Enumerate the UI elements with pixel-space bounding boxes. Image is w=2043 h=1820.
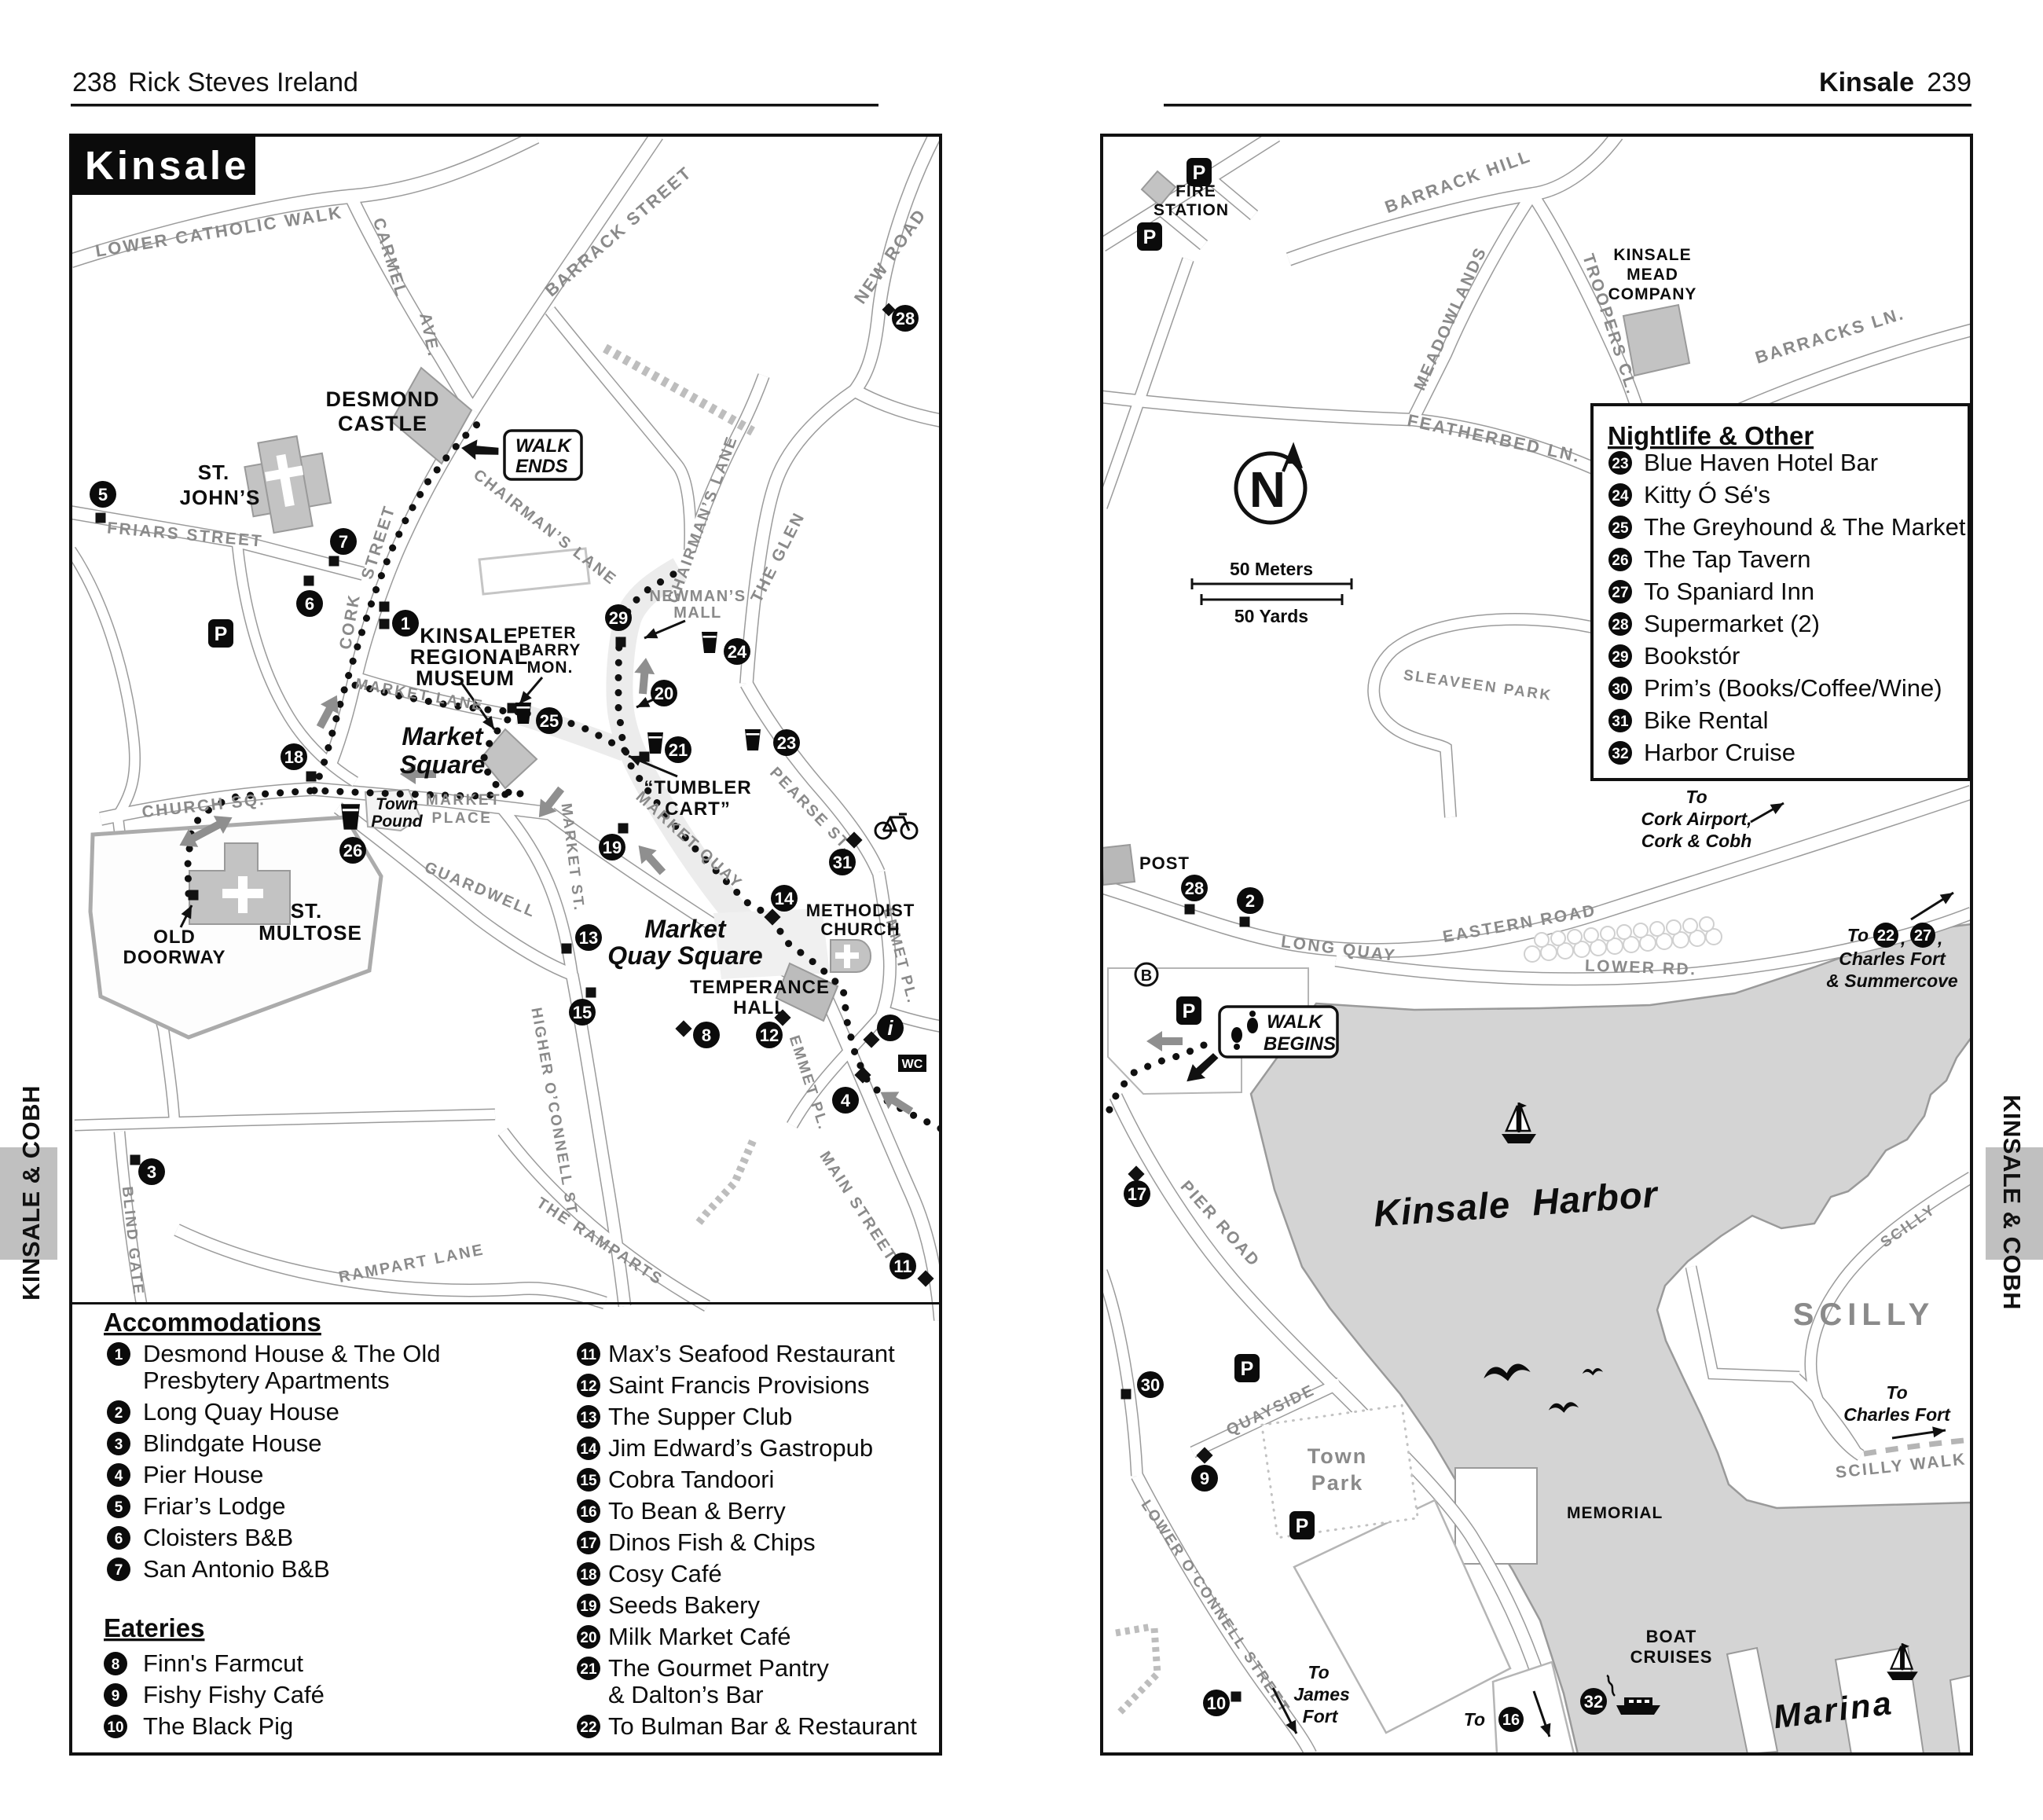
svg-text:Harbor Cruise: Harbor Cruise [1644,739,1795,766]
svg-text:30: 30 [1612,681,1628,698]
svg-text:Supermarket (2): Supermarket (2) [1644,610,1820,637]
svg-text:7: 7 [339,532,348,552]
svg-text:3: 3 [147,1162,156,1182]
svg-text:To: To [1685,787,1707,807]
svg-text:32: 32 [1584,1692,1603,1712]
svg-text:13: 13 [580,1410,596,1426]
svg-text:To Spaniard Inn: To Spaniard Inn [1644,578,1814,605]
svg-text:STATION: STATION [1154,201,1229,219]
svg-text:6: 6 [115,1531,123,1547]
svg-text:Cork Airport,: Cork Airport, [1641,809,1752,829]
svg-text:To Bean & Berry: To Bean & Berry [608,1497,786,1525]
svg-text:DESMOND: DESMOND [325,387,439,411]
svg-text:James: James [1293,1684,1350,1704]
svg-text:19: 19 [603,838,622,857]
svg-text:KINSALE: KINSALE [1613,246,1691,264]
svg-text:P: P [215,623,228,645]
svg-text:16: 16 [580,1504,596,1521]
svg-text:8: 8 [112,1657,120,1673]
svg-text:8: 8 [702,1026,711,1045]
svg-text:B: B [1141,967,1152,985]
svg-text:i: i [887,1016,893,1040]
svg-text:Town: Town [376,795,418,813]
svg-text:MARKET: MARKET [426,792,501,809]
svg-text:15: 15 [573,1003,592,1022]
svg-text:2: 2 [1245,891,1255,911]
svg-text:Quay Square: Quay Square [607,941,762,970]
svg-text:9: 9 [1200,1469,1209,1488]
svg-text:20: 20 [580,1630,596,1646]
svg-text:The Supper Club: The Supper Club [608,1403,792,1430]
svg-text:P: P [1183,1000,1196,1022]
svg-text:BEGINS: BEGINS [1264,1033,1336,1055]
svg-text:23: 23 [777,733,796,753]
svg-text:Cosy Café: Cosy Café [608,1560,722,1587]
svg-text:31: 31 [833,853,852,872]
svg-text:Bookstór: Bookstór [1644,642,1740,670]
svg-text:& Summercove: & Summercove [1826,971,1958,991]
svg-text:239: 239 [1927,68,1971,97]
svg-text:Pier House: Pier House [143,1461,263,1488]
svg-text:24: 24 [1612,488,1629,505]
svg-text:To: To [1464,1709,1485,1730]
svg-text:27: 27 [1914,927,1931,945]
svg-text:Kinsale: Kinsale [85,143,249,188]
svg-text:Rick Steves Ireland: Rick Steves Ireland [128,68,358,97]
svg-text:21: 21 [669,740,688,760]
svg-text:METHODIST: METHODIST [806,901,915,920]
svg-text:Friar’s Lodge: Friar’s Lodge [143,1492,286,1520]
svg-text:Max’s Seafood Restaurant: Max’s Seafood Restaurant [608,1340,895,1367]
svg-text:MEMORIAL: MEMORIAL [1567,1504,1663,1522]
svg-text:& Dalton’s Bar: & Dalton’s Bar [608,1681,764,1708]
svg-text:18: 18 [284,747,303,767]
svg-text:To: To [1308,1662,1329,1682]
svg-text:14: 14 [580,1441,597,1458]
svg-text:P: P [1193,162,1206,184]
svg-text:,: , [1900,928,1905,949]
svg-text:Charles Fort: Charles Fort [1839,949,1946,969]
svg-text:Park: Park [1311,1471,1364,1495]
svg-text:9: 9 [112,1688,120,1704]
svg-text:29: 29 [1612,649,1628,666]
svg-text:Seeds Bakery: Seeds Bakery [608,1591,760,1619]
svg-text:21: 21 [580,1661,597,1678]
svg-text:22: 22 [580,1719,596,1736]
svg-text:NEWMAN’S: NEWMAN’S [649,588,746,605]
svg-text:Market: Market [402,722,484,750]
svg-text:Charles Fort: Charles Fort [1843,1404,1951,1425]
svg-text:26: 26 [1612,552,1628,569]
svg-text:JOHN’S: JOHN’S [180,486,261,509]
svg-text:Accommodations: Accommodations [104,1308,321,1337]
svg-text:Kitty Ó Sé's: Kitty Ó Sé's [1644,481,1770,508]
svg-text:CRUISES: CRUISES [1630,1647,1713,1667]
svg-text:1: 1 [115,1347,123,1363]
svg-text:28: 28 [1185,879,1204,898]
svg-text:10: 10 [1207,1693,1226,1713]
svg-text:4: 4 [841,1091,851,1110]
svg-text:Eateries: Eateries [104,1613,204,1642]
svg-text:32: 32 [1612,746,1628,762]
svg-text:P: P [1143,226,1157,248]
svg-text:PLACE: PLACE [432,810,493,827]
svg-text:MULTOSE: MULTOSE [259,921,362,945]
svg-text:11: 11 [893,1257,911,1276]
svg-text:5: 5 [115,1499,123,1516]
svg-text:P: P [1296,1515,1309,1537]
svg-text:11: 11 [581,1347,597,1363]
svg-text:MALL: MALL [673,604,722,622]
svg-text:P: P [1241,1358,1254,1380]
svg-text:CASTLE: CASTLE [338,412,427,435]
svg-text:31: 31 [1612,714,1629,730]
svg-text:Nightlife & Other: Nightlife & Other [1608,421,1814,450]
svg-text:Blindgate House: Blindgate House [143,1429,322,1457]
svg-text:Town: Town [1308,1444,1367,1468]
svg-text:27: 27 [1612,585,1628,601]
svg-text:The Black Pig: The Black Pig [143,1712,293,1740]
svg-text:Desmond House & The Old: Desmond House & The Old [143,1340,441,1367]
svg-text:12: 12 [580,1378,596,1395]
svg-text:KINSALE & COBH: KINSALE & COBH [17,1085,45,1301]
svg-text:SCILLY: SCILLY [1793,1297,1935,1332]
svg-text:12: 12 [760,1026,779,1045]
svg-text:Finn's Farmcut: Finn's Farmcut [143,1649,303,1677]
svg-text:Pound: Pound [371,813,423,831]
svg-text:30: 30 [1141,1375,1160,1395]
svg-text:29: 29 [609,608,628,628]
svg-text:WALK: WALK [515,435,572,457]
svg-text:238: 238 [72,68,117,97]
svg-text:KINSALE: KINSALE [420,624,519,648]
svg-text:WC: WC [902,1058,923,1071]
svg-text:50 Yards: 50 Yards [1234,606,1308,626]
svg-text:“TUMBLER: “TUMBLER [644,777,751,798]
svg-text:15: 15 [580,1473,597,1489]
svg-text:TEMPERANCE: TEMPERANCE [690,977,830,998]
svg-text:Blue Haven Hotel Bar: Blue Haven Hotel Bar [1644,449,1878,476]
svg-text:The Tap Tavern: The Tap Tavern [1644,545,1811,573]
svg-text:Presbytery Apartments: Presbytery Apartments [143,1367,390,1394]
svg-text:3: 3 [115,1437,123,1453]
svg-text:7: 7 [115,1562,123,1579]
svg-text:The Gourmet Pantry: The Gourmet Pantry [608,1654,829,1682]
svg-text:OLD: OLD [153,927,196,948]
svg-text:Cloisters B&B: Cloisters B&B [143,1524,293,1551]
svg-text:10: 10 [107,1719,123,1736]
svg-text:16: 16 [1502,1712,1520,1729]
svg-text:Long Quay House: Long Quay House [143,1398,339,1426]
svg-text:24: 24 [728,642,747,662]
svg-text:BOAT: BOAT [1646,1627,1697,1646]
svg-text:KINSALE & COBH: KINSALE & COBH [1998,1095,2026,1310]
svg-text:MON.: MON. [527,659,574,677]
svg-text:WALK: WALK [1267,1011,1323,1033]
svg-text:14: 14 [775,889,794,908]
svg-text:Kinsale: Kinsale [1819,68,1914,97]
svg-text:Saint Francis Provisions: Saint Francis Provisions [608,1371,870,1399]
svg-text:50 Meters: 50 Meters [1230,559,1313,579]
svg-text:Market: Market [644,915,727,943]
svg-text:N: N [1249,461,1286,518]
svg-text:13: 13 [579,928,598,948]
svg-text:17: 17 [1128,1184,1146,1204]
svg-text:25: 25 [540,711,559,731]
svg-text:Cobra Tandoori: Cobra Tandoori [608,1466,774,1493]
svg-text:REGIONAL: REGIONAL [410,645,529,669]
svg-text:25: 25 [1612,520,1629,537]
svg-text:5: 5 [98,485,108,505]
svg-text:Fort: Fort [1303,1706,1339,1726]
svg-text:DOORWAY: DOORWAY [123,947,226,968]
svg-text:MUSEUM: MUSEUM [416,666,515,690]
svg-text:To: To [1886,1382,1907,1403]
svg-text:Square: Square [400,750,485,779]
svg-text:Dinos Fish & Chips: Dinos Fish & Chips [608,1528,816,1556]
svg-text:6: 6 [305,594,314,614]
svg-text:POST: POST [1139,853,1190,873]
svg-text:Cork & Cobh: Cork & Cobh [1641,831,1752,851]
svg-text:PETER: PETER [517,624,576,642]
svg-text:ST.: ST. [198,461,230,484]
svg-text:1: 1 [401,614,410,633]
svg-text:Jim Edward’s Gastropub: Jim Edward’s Gastropub [608,1434,873,1462]
svg-text:CHURCH: CHURCH [820,919,900,939]
svg-text:2: 2 [115,1405,123,1422]
svg-text:San Antonio B&B: San Antonio B&B [143,1555,330,1583]
svg-text:Bike Rental: Bike Rental [1644,706,1769,734]
svg-text:Prim’s (Books/Coffee/Wine): Prim’s (Books/Coffee/Wine) [1644,674,1942,702]
svg-text:Fishy Fishy Café: Fishy Fishy Café [143,1681,325,1708]
svg-text:4: 4 [115,1468,123,1484]
svg-text:CART”: CART” [665,798,731,820]
svg-text:ST.: ST. [291,899,323,923]
svg-text:20: 20 [655,684,673,703]
svg-text:BARRY: BARRY [519,641,581,659]
svg-text:COMPANY: COMPANY [1608,285,1697,303]
svg-text:MEAD: MEAD [1627,266,1678,284]
svg-text:To: To [1847,925,1869,945]
svg-text:18: 18 [580,1567,596,1583]
svg-text:26: 26 [343,841,362,860]
svg-text:,: , [1937,928,1942,949]
svg-text:To Bulman Bar & Restaurant: To Bulman Bar & Restaurant [608,1712,917,1740]
svg-text:Milk Market Café: Milk Market Café [608,1623,791,1650]
svg-text:22: 22 [1877,927,1894,945]
svg-text:The Greyhound & The Market: The Greyhound & The Market [1644,513,1966,541]
svg-text:23: 23 [1612,456,1628,472]
svg-text:19: 19 [580,1598,596,1615]
svg-text:ENDS: ENDS [515,456,568,477]
svg-text:28: 28 [896,309,915,328]
svg-text:17: 17 [580,1536,596,1552]
svg-text:28: 28 [1612,617,1628,633]
